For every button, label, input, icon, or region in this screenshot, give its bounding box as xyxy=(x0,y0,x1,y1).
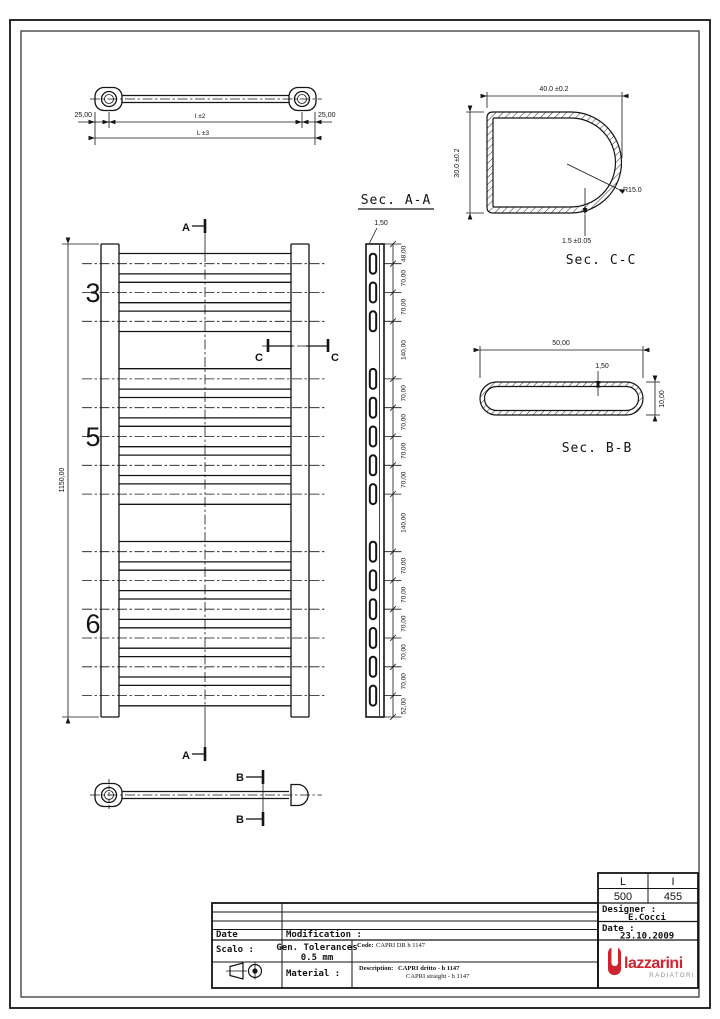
aa-dim-label: 48,00 xyxy=(401,245,408,262)
description-label: Description: xyxy=(359,965,393,972)
aa-slot xyxy=(370,570,376,590)
designer-value: E.Cocci xyxy=(628,912,667,923)
front-view-height-dim: 1150,00 xyxy=(59,468,66,493)
section-aa: Sec. A-A 1,50 48,0070,0070,00140,0070,00… xyxy=(358,193,434,720)
aa-slot xyxy=(370,628,376,648)
top-view: 25,00 25,00 I ±2 L ±3 xyxy=(74,88,335,146)
description-value: CAPRI dritto - h 1147 xyxy=(398,965,460,972)
drawing-sheet: 25,00 25,00 I ±2 L ±3 40.0 ±0.2 30.0 ±0.… xyxy=(0,0,720,1019)
marker-b-bottom-label: B xyxy=(236,814,244,826)
tolerances-label: Gen. Tolerances xyxy=(276,943,357,953)
cc-dim-wall: 1.5 ±0.05 xyxy=(562,238,591,245)
front-view: A A C C 3 5 6 1150,00 xyxy=(59,219,339,762)
aa-dim-label: 70,00 xyxy=(401,385,408,402)
marker-c-right-label: C xyxy=(331,352,339,364)
modification-label: Modification : xyxy=(286,929,362,940)
aa-dim-label: 70,00 xyxy=(401,673,408,690)
cc-dim-height: 30.0 ±0.2 xyxy=(454,148,461,177)
technical-drawing: 25,00 25,00 I ±2 L ±3 40.0 ±0.2 30.0 ±0.… xyxy=(0,0,720,1019)
marker-a-bottom-label: A xyxy=(182,750,190,762)
section-bb: 50,00 1,50 10,00 Sec. B-B xyxy=(480,340,666,456)
bb-dim-wall: 1,50 xyxy=(595,363,609,370)
top-view-dim-overall: L ±3 xyxy=(197,130,210,137)
group-label-6: 6 xyxy=(85,609,100,639)
col-l-label: L xyxy=(620,876,626,888)
aa-dim-label: 70,00 xyxy=(401,414,408,431)
aa-slot xyxy=(370,484,376,504)
section-aa-title: Sec. A-A xyxy=(361,193,432,208)
aa-dim-label: 52,00 xyxy=(401,698,408,715)
aa-dim-label: 70,00 xyxy=(401,557,408,574)
title-block: Date Modification : Scalo : Gen. Toleran… xyxy=(212,873,698,988)
description-value2: CAPRI straight - h 1147 xyxy=(406,973,470,980)
aa-dim-label: 70,00 xyxy=(401,442,408,459)
aa-slot xyxy=(370,657,376,677)
aa-slot xyxy=(370,599,376,619)
aa-dim-label: 70,00 xyxy=(401,615,408,632)
projection-symbol-icon xyxy=(226,963,262,980)
aa-slot xyxy=(370,283,376,303)
col-l-value: 500 xyxy=(614,891,632,903)
aa-dim-label: 70,00 xyxy=(401,471,408,488)
bottom-view: B B xyxy=(90,770,322,826)
section-cc-title: Sec. C-C xyxy=(566,253,637,268)
aa-dim-label: 70,00 xyxy=(401,270,408,287)
cut-marker-c: C C xyxy=(255,339,339,364)
cc-dim-width: 40.0 ±0.2 xyxy=(539,86,568,93)
cc-profile xyxy=(487,112,621,213)
code-label: Code: xyxy=(357,942,374,949)
bb-dim-height: 10,00 xyxy=(659,390,666,408)
cut-marker-a-top: A xyxy=(182,219,205,234)
lazzarini-logo: lazzarini RADIATORI xyxy=(608,944,695,979)
group-label-5: 5 xyxy=(85,422,100,452)
code-value: CAPRI DR h 1147 xyxy=(376,942,426,949)
marker-c-left-label: C xyxy=(255,352,263,364)
aa-slot xyxy=(370,369,376,389)
tolerances-value: 0.5 mm xyxy=(301,953,334,963)
top-view-dim-right: 25,00 xyxy=(318,112,336,119)
aa-dim-layer: 48,0070,0070,00140,0070,0070,0070,0070,0… xyxy=(385,241,408,720)
date-value: 23.10.2009 xyxy=(620,932,674,942)
aa-slot xyxy=(370,311,376,331)
aa-dim-label: 70,00 xyxy=(401,298,408,315)
bb-dim-width: 50,00 xyxy=(552,340,570,347)
col-i-label: I xyxy=(671,876,674,888)
aa-dim-wall: 1,50 xyxy=(374,220,388,227)
marker-b-top-label: B xyxy=(236,772,244,784)
aa-slot-layer xyxy=(370,254,376,706)
top-view-dim-interaxis: I ±2 xyxy=(195,113,206,120)
aa-slot xyxy=(370,542,376,562)
aa-slot xyxy=(370,254,376,274)
aa-dim-label: 70,00 xyxy=(401,586,408,603)
scale-label: Scalo : xyxy=(216,945,254,955)
sheet-border xyxy=(10,20,710,1008)
logo-text: lazzarini xyxy=(624,955,683,972)
col-i-value: 455 xyxy=(664,891,682,903)
top-view-dim-left: 25,00 xyxy=(74,112,92,119)
bb-profile xyxy=(480,382,643,415)
aa-slot xyxy=(370,455,376,475)
aa-slot xyxy=(370,686,376,706)
cc-dim-radius: R15.0 xyxy=(623,187,642,194)
aa-dim-label: 70,00 xyxy=(401,644,408,661)
logo-subtext: RADIATORI xyxy=(649,972,695,979)
section-bb-title: Sec. B-B xyxy=(562,441,633,456)
marker-a-top-label: A xyxy=(182,222,190,234)
material-label: Material : xyxy=(286,968,340,979)
aa-slot xyxy=(370,398,376,418)
cut-marker-a-bottom: A xyxy=(182,747,205,762)
section-cc: 40.0 ±0.2 30.0 ±0.2 R15.0 1.5 ±0.05 Sec.… xyxy=(454,86,642,268)
date-label: Date xyxy=(216,930,238,940)
group-label-3: 3 xyxy=(85,278,100,308)
aa-slot xyxy=(370,427,376,447)
aa-dim-label: 140,00 xyxy=(401,340,408,360)
aa-dim-label: 140,00 xyxy=(401,513,408,533)
